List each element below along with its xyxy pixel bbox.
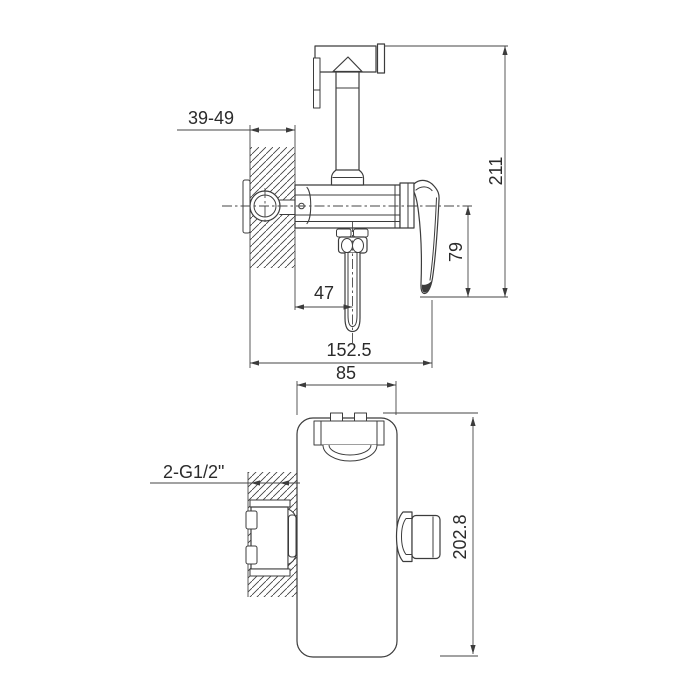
front-view: 85 202.8 2-G1/2" <box>150 363 478 657</box>
dim-total-height-front-label: 202.8 <box>450 514 470 559</box>
dim-hose-offset-label: 47 <box>314 283 334 303</box>
thread-size-label: 2-G1/2" <box>163 462 224 482</box>
holder-tab-left <box>331 413 343 421</box>
handle-lever-blade <box>414 180 439 293</box>
sprayer-face-cap <box>378 44 385 73</box>
valve-body-side <box>295 185 400 228</box>
sprayer-clip <box>314 58 321 108</box>
dimension-handle-height: 79 <box>446 206 471 297</box>
dim-wall-depth-label: 39-49 <box>188 108 234 128</box>
dimension-hose-offset: 47 <box>295 283 353 310</box>
mixer-body-front <box>297 413 397 657</box>
g12-port-top <box>246 511 257 529</box>
dimension-total-depth: 152.5 <box>250 300 432 368</box>
dim-total-height-label: 211 <box>486 157 506 186</box>
lever-handle-front <box>397 512 441 562</box>
dim-handle-height-label: 79 <box>446 242 466 262</box>
hand-sprayer <box>314 44 385 185</box>
holder-tab-right <box>355 413 367 421</box>
dimension-body-width: 85 <box>297 363 396 415</box>
drawing-svg: 39-49 211 79 47 <box>0 0 700 700</box>
handle-escutcheon <box>400 183 414 228</box>
dim-body-width-label: 85 <box>336 363 356 383</box>
side-view: 39-49 211 79 47 <box>177 44 508 368</box>
dim-total-depth-label: 152.5 <box>326 340 371 360</box>
sprayer-holder-front <box>314 421 384 445</box>
lever-handle-side <box>400 180 439 293</box>
g12-port-bottom <box>246 546 257 564</box>
dimension-wall-depth: 39-49 <box>177 108 295 133</box>
wall-section-side <box>250 125 295 368</box>
technical-drawing-bidet-mixer: 39-49 211 79 47 <box>0 0 700 700</box>
